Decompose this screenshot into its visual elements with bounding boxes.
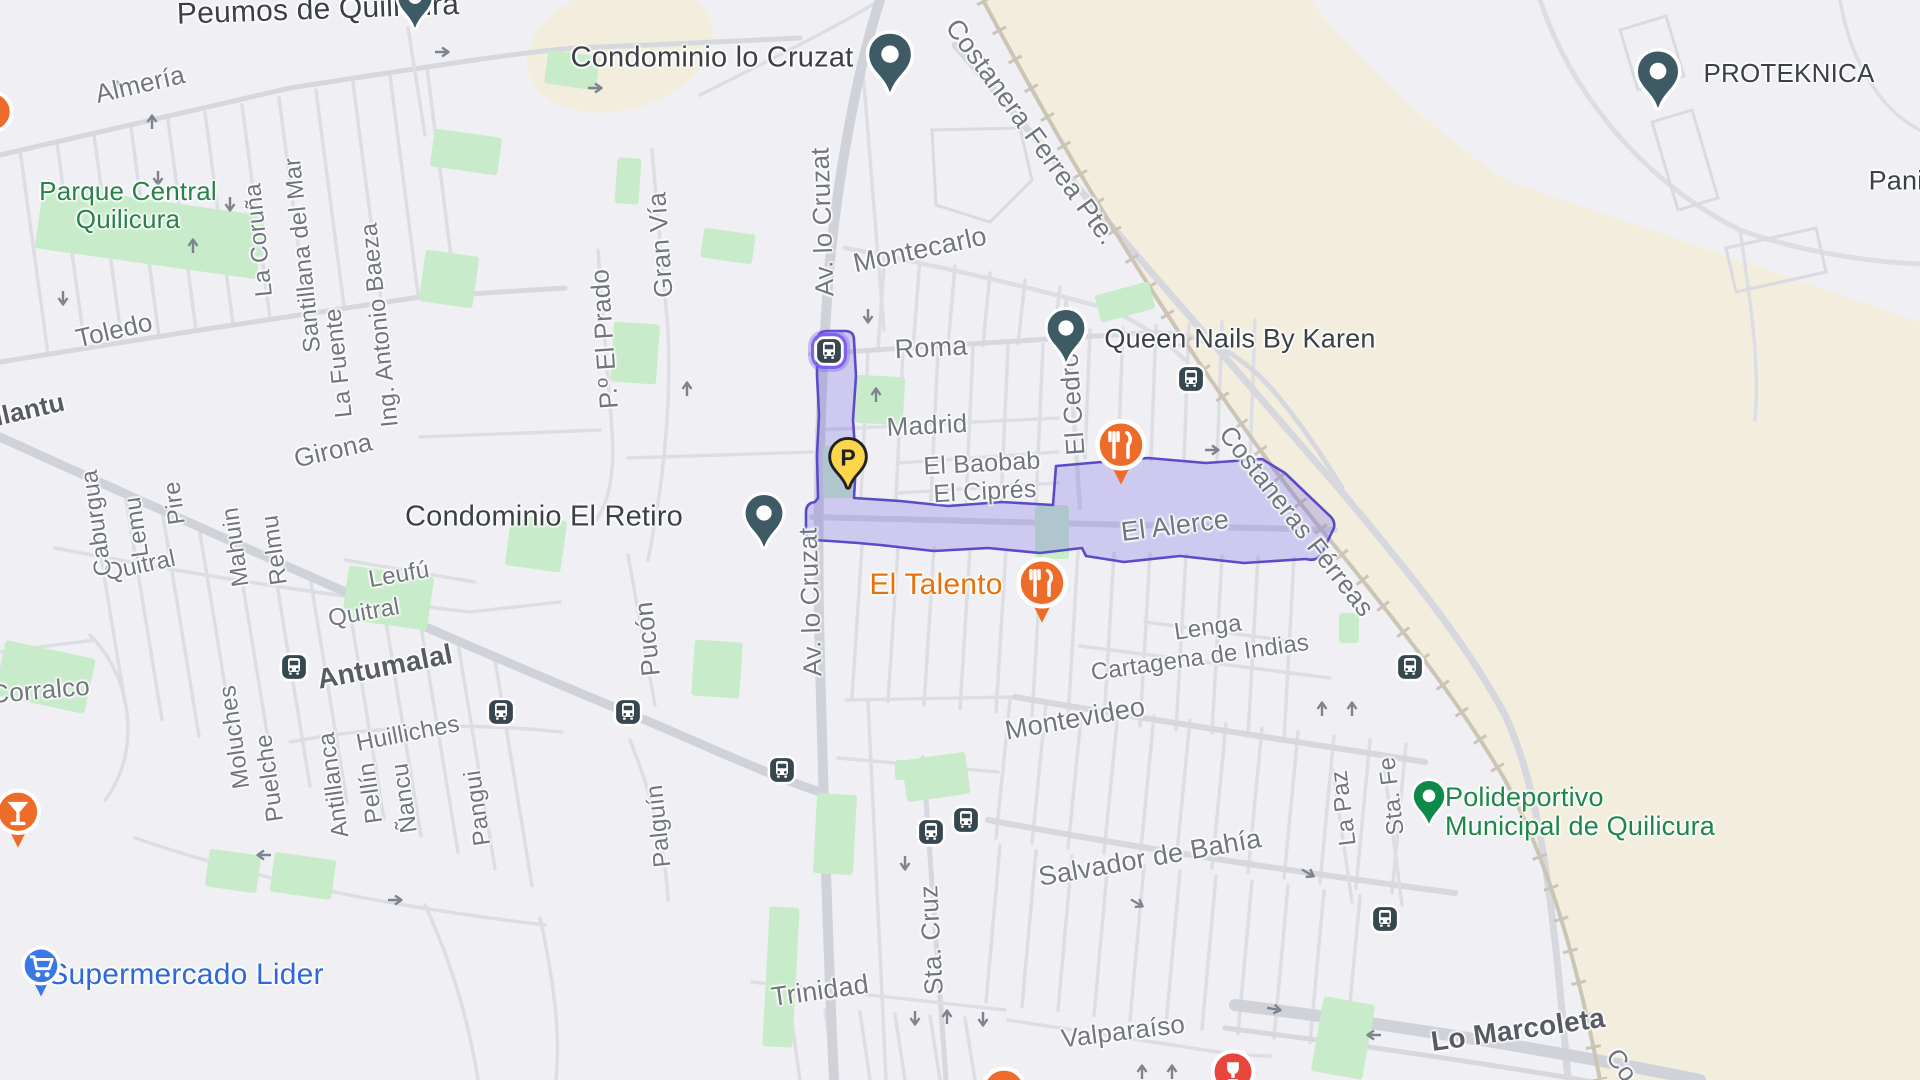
parking-pin[interactable]: P xyxy=(826,437,870,496)
bar-pin[interactable] xyxy=(0,787,45,855)
label-pani[interactable]: Pani xyxy=(1869,166,1920,195)
bus-stop-costanera-n[interactable] xyxy=(1176,364,1206,394)
parking-letter: P xyxy=(840,445,855,472)
el-talento-pin[interactable] xyxy=(1012,555,1072,630)
bus-stop-antumalal-2[interactable] xyxy=(486,697,516,727)
label-roma: Roma xyxy=(894,332,968,365)
bus-stop-roma-selected[interactable] xyxy=(814,336,844,366)
bus-stop-antumalal-1[interactable] xyxy=(279,652,309,682)
bus-stop-antumalal-3[interactable] xyxy=(613,697,643,727)
polideportivo-pin[interactable] xyxy=(1410,778,1448,832)
bus-stop-montevideo[interactable] xyxy=(767,755,797,785)
supermercado-lider-pin[interactable] xyxy=(18,945,64,1003)
peumos-pin[interactable] xyxy=(394,0,436,36)
queen-nails-pin[interactable] xyxy=(1043,306,1089,371)
label-av-lo-cruzat-s: Av. lo Cruzat xyxy=(793,527,826,677)
label-condominio-el-retiro[interactable]: Condominio El Retiro xyxy=(405,501,683,532)
orange-poi-partial-left[interactable] xyxy=(0,89,17,152)
label-parque-central-quilicura[interactable]: Parque Central Quilicura xyxy=(39,177,217,233)
restaurant-el-cedro-pin[interactable] xyxy=(1091,417,1151,492)
condominio-el-retiro-pin[interactable] xyxy=(741,491,787,556)
label-polideportivo[interactable]: Polideportivo Municipal de Quilicura xyxy=(1445,783,1715,841)
label-el-cipres: El Ciprés xyxy=(933,476,1037,508)
label-sta-cruz: Sta. Cruz xyxy=(914,884,948,995)
condominio-lo-cruzat-pin[interactable] xyxy=(864,29,916,103)
label-gran-via: Gran Vía xyxy=(642,191,677,298)
label-av-lo-cruzat-n: Av. lo Cruzat xyxy=(805,147,838,297)
bus-stop-la-paz[interactable] xyxy=(1370,904,1400,934)
label-madrid: Madrid xyxy=(886,409,968,441)
bus-stop-costanera-s[interactable] xyxy=(1395,652,1425,682)
red-poi-pin[interactable] xyxy=(1207,1048,1259,1080)
bus-stop-salvador-1[interactable] xyxy=(916,817,946,847)
map-viewport[interactable]: Peumos de QuilicuraCondominio lo CruzatP… xyxy=(0,0,1920,1080)
label-queen-nails-by-karen[interactable]: Queen Nails By Karen xyxy=(1104,324,1375,353)
bus-stop-salvador-2[interactable] xyxy=(951,805,981,835)
proteknica-pin[interactable] xyxy=(1633,47,1683,118)
orange-poi-partial-bottom[interactable] xyxy=(977,1065,1031,1080)
label-el-talento[interactable]: El Talento xyxy=(869,569,1002,601)
label-supermercado-lider[interactable]: Supermercado Lider xyxy=(48,959,323,991)
label-condominio-lo-cruzat[interactable]: Condominio lo Cruzat xyxy=(571,42,854,73)
label-proteknica[interactable]: PROTEKNICA xyxy=(1703,59,1874,87)
